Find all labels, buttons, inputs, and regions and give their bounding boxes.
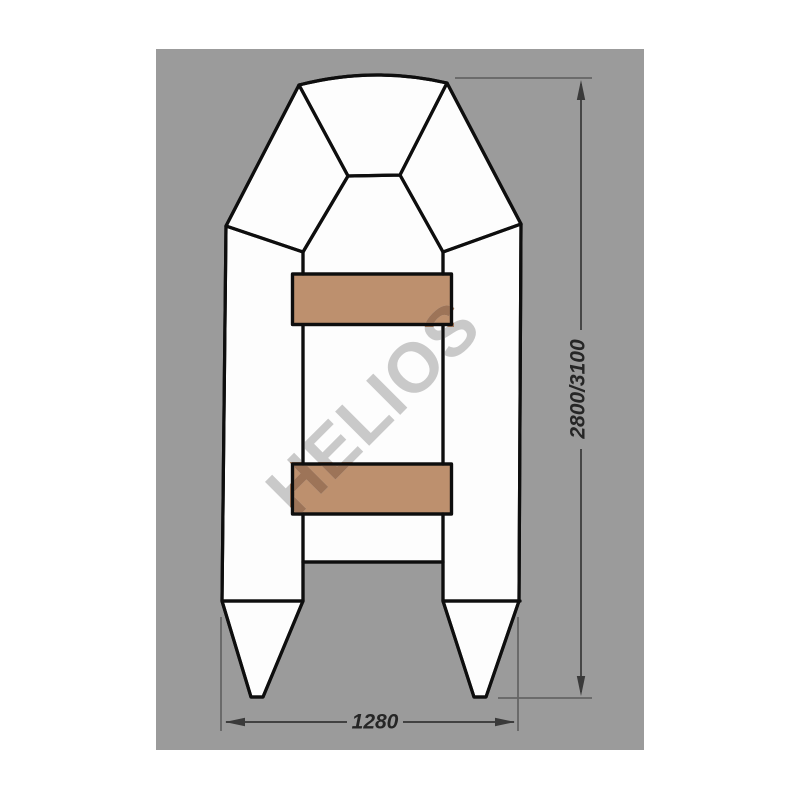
length-dimension-label: 2800/3100 <box>567 339 590 440</box>
width-dimension-label: 1280 <box>352 711 399 734</box>
boat-dimension-diagram: HELIOS HELIOS 2800/3100 1280 <box>0 0 800 800</box>
diagram-canvas: HELIOS HELIOS 2800/3100 1280 <box>0 0 800 800</box>
